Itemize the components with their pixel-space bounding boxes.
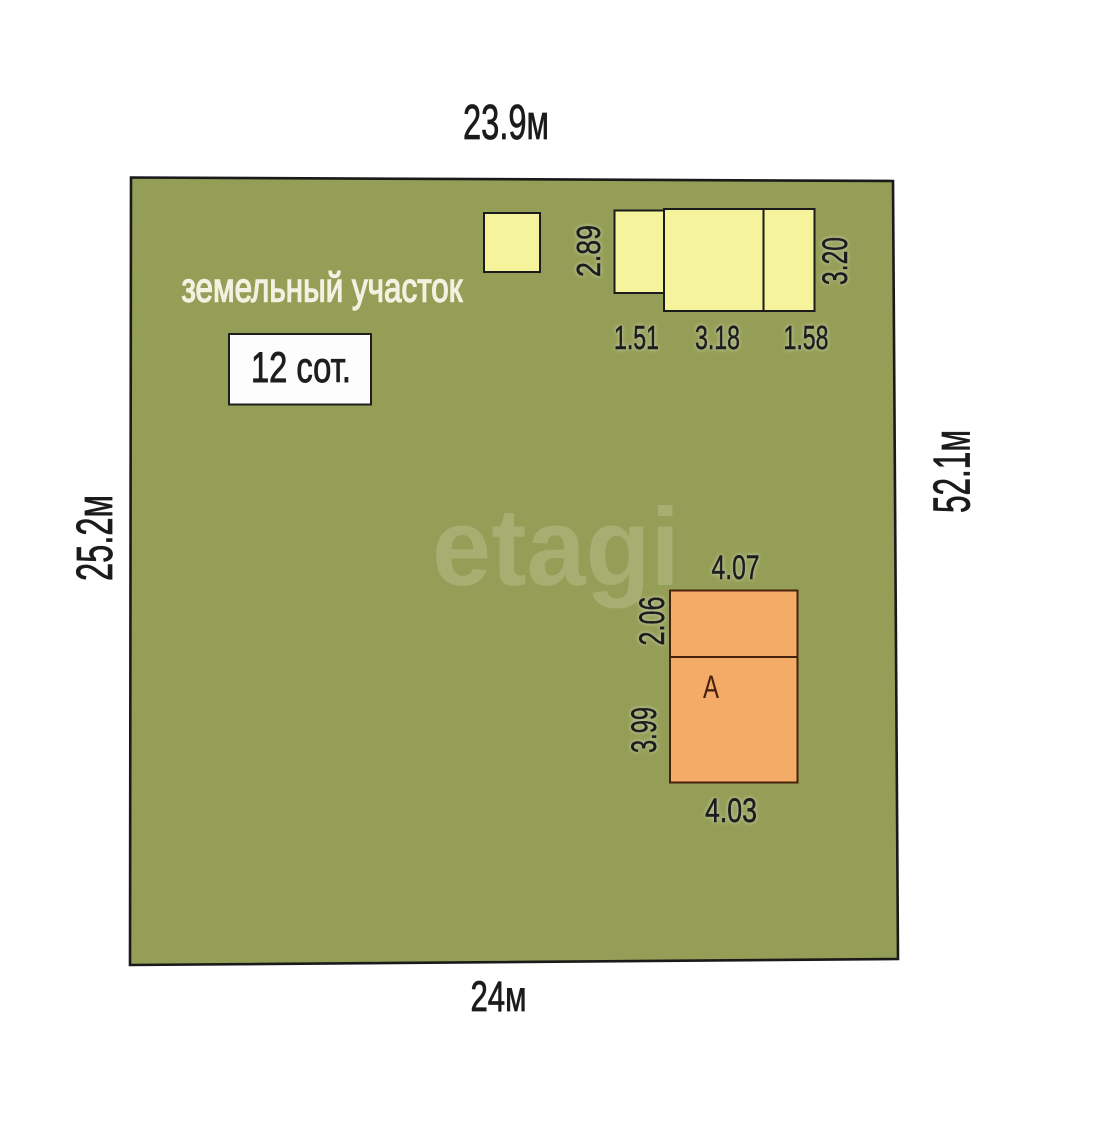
- svg-text:4.03: 4.03: [705, 792, 757, 830]
- svg-text:24м: 24м: [471, 973, 527, 1021]
- svg-text:25.2м: 25.2м: [66, 495, 123, 581]
- svg-text:1.51: 1.51: [614, 319, 659, 356]
- svg-text:3.20: 3.20: [816, 237, 855, 285]
- svg-text:etagi: etagi: [432, 486, 680, 609]
- svg-text:4.07: 4.07: [712, 549, 760, 587]
- svg-text:23.9м: 23.9м: [463, 96, 549, 150]
- svg-text:52.1м: 52.1м: [924, 430, 982, 513]
- svg-text:земельный участок: земельный участок: [182, 265, 464, 311]
- svg-text:А: А: [703, 669, 719, 705]
- svg-text:1.58: 1.58: [784, 319, 829, 356]
- svg-text:2.89: 2.89: [570, 225, 607, 277]
- svg-text:3.99: 3.99: [625, 707, 664, 753]
- svg-text:3.18: 3.18: [695, 319, 740, 356]
- svg-text:2.06: 2.06: [633, 597, 672, 646]
- svg-text:12 сот.: 12 сот.: [251, 344, 351, 392]
